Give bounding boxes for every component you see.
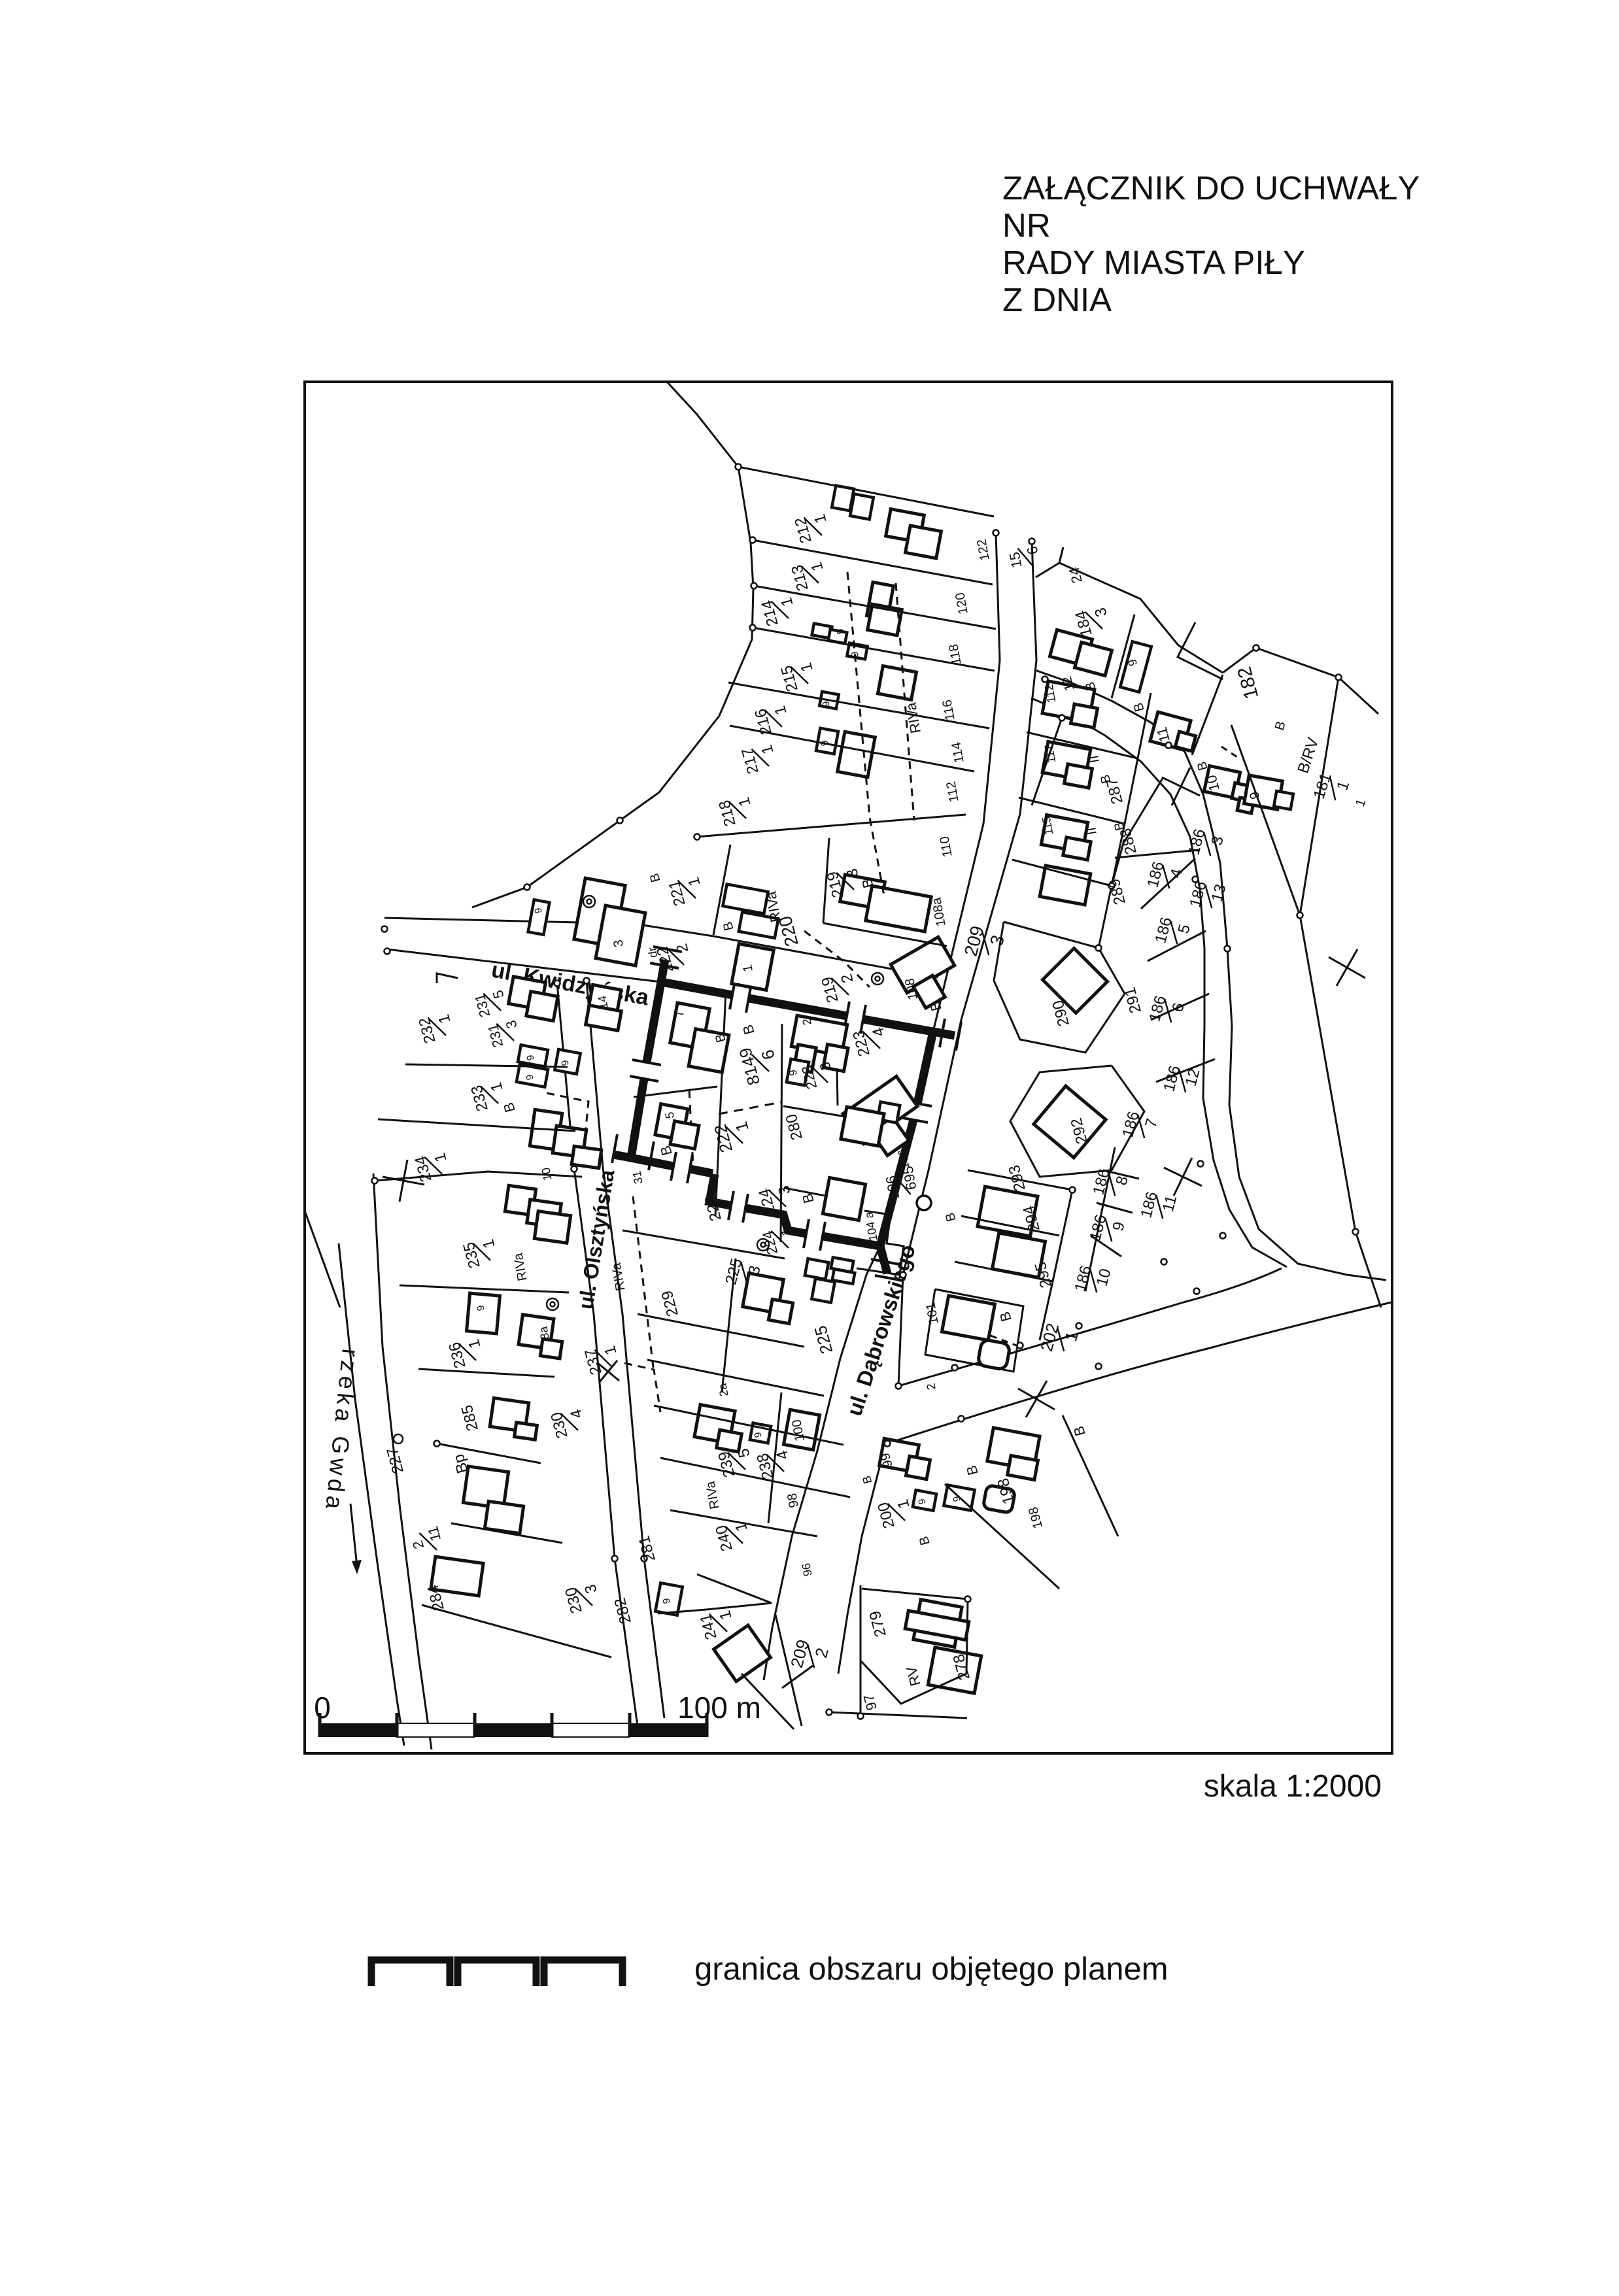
- svg-text:100 m: 100 m: [677, 1691, 761, 1725]
- svg-text:RADY MIASTA PIŁY: RADY MIASTA PIŁY: [1002, 244, 1305, 281]
- svg-text:0: 0: [314, 1691, 331, 1725]
- svg-text:dr: dr: [645, 946, 660, 958]
- svg-text:10: 10: [539, 1166, 554, 1181]
- svg-text:skala 1:2000: skala 1:2000: [1204, 1769, 1382, 1804]
- svg-text:98: 98: [785, 1492, 802, 1509]
- svg-text:NR: NR: [1002, 207, 1051, 244]
- svg-text:14: 14: [596, 994, 611, 1009]
- svg-text:Z DNIA: Z DNIA: [1002, 281, 1112, 318]
- svg-text:96: 96: [800, 1562, 815, 1577]
- svg-text:ZAŁĄCZNIK DO UCHWAŁY: ZAŁĄCZNIK DO UCHWAŁY: [1002, 169, 1420, 207]
- svg-text:granica obszaru objętego plane: granica obszaru objętego planem: [694, 1951, 1168, 1987]
- svg-text:31: 31: [630, 1170, 645, 1185]
